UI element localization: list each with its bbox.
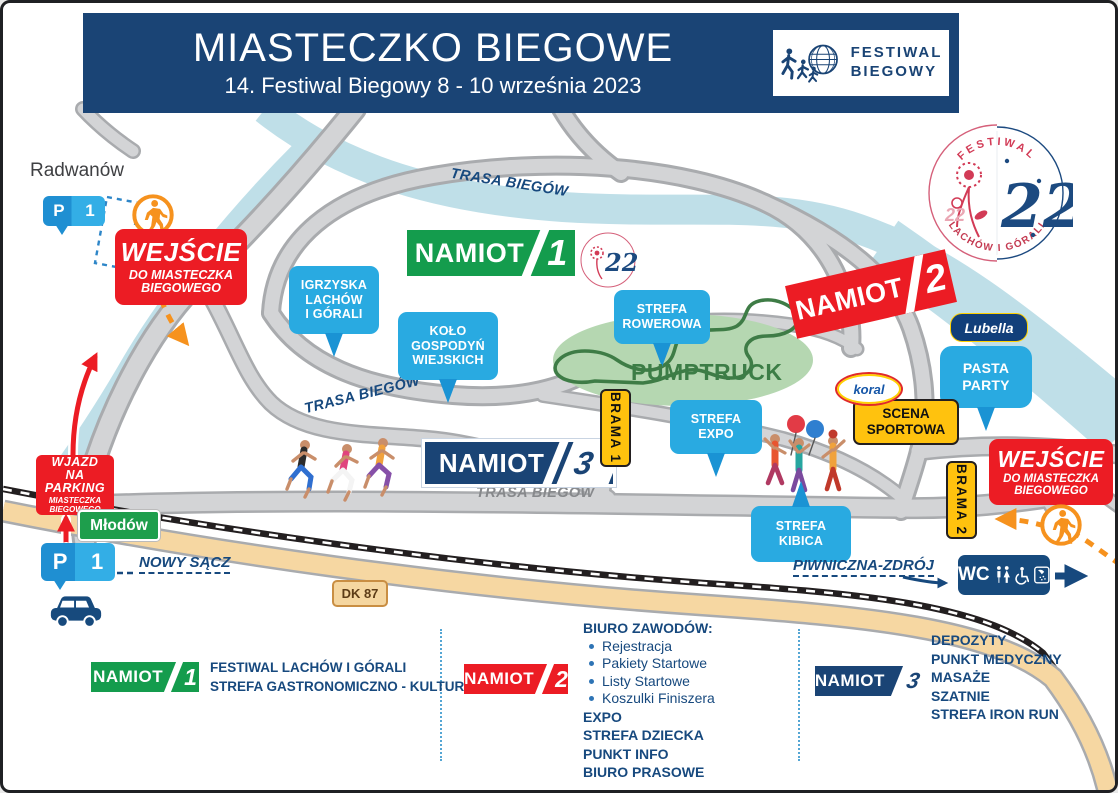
legend-n3-label: NAMIOT	[815, 671, 885, 691]
direction-nowy-sacz: NOWY SĄCZ	[139, 554, 230, 574]
pin-line: PASTA	[946, 360, 1026, 377]
entrance-line3: BIEGOWEGO	[1014, 485, 1087, 497]
legend-line: STREFA IRON RUN	[931, 705, 1062, 724]
namiot-1-number: 1	[547, 232, 567, 274]
legend-n2-number: 2	[555, 666, 568, 693]
runners-globe-icon	[780, 38, 844, 88]
bullet-dot	[589, 696, 594, 701]
legend-bullet: Rejestracja	[583, 638, 715, 656]
brand-wordmark: FESTIWAL BIEGOWY	[851, 44, 943, 82]
wc-sign: WC	[958, 555, 1050, 595]
route-label-bottom: TRASA BIEGÓW	[476, 485, 595, 501]
pin-igrzyska: IGRZYSKA LACHÓW I GÓRALI	[289, 266, 379, 334]
legend-line: PUNKT MEDYCZNY	[931, 650, 1062, 669]
brand-line1: FESTIWAL	[851, 44, 943, 63]
bullet-text: Pakiety Startowe	[602, 655, 707, 673]
bullet-dot	[589, 679, 594, 684]
lubella-logo: Lubella	[950, 313, 1028, 342]
namiot-2-slash	[905, 254, 923, 314]
entrance-line1: WEJŚCIE	[121, 239, 242, 266]
pin-kolo-gospodyn: KOŁO GOSPODYŃ WIEJSKICH	[398, 312, 498, 380]
legend-line: PUNKT INFO	[583, 745, 715, 764]
legend-line: STREFA DZIECKA	[583, 726, 715, 745]
bullet-text: Koszulki Finiszera	[602, 690, 715, 708]
pin-line: WIEJSKICH	[404, 353, 492, 368]
legend-line: EXPO	[583, 708, 715, 727]
legend-n2-label: NAMIOT	[464, 669, 534, 689]
legend-line: FESTIWAL LACHÓW I GÓRALI	[210, 659, 502, 678]
man-woman-icon	[995, 563, 1011, 587]
legend-divider-2	[798, 629, 800, 761]
wjazd-parking-sign: WJAZD NA PARKING MIASTECZKA BIEGOWEGO	[36, 455, 114, 515]
pin-strefa-rowerowa: STREFA ROWEROWA	[614, 290, 710, 344]
festiwal-biegowy-logo: FESTIWAL BIEGOWY	[773, 30, 949, 96]
legend-bullet: Listy Startowe	[583, 673, 715, 691]
car-icon	[47, 587, 105, 629]
legend-line: SZATNIE	[931, 687, 1062, 706]
namiot-3-label: NAMIOT	[439, 448, 545, 479]
bullet-dot	[589, 661, 594, 666]
brand-line2: BIEGOWY	[851, 63, 943, 82]
legend-line: STREFA GASTRONOMICZNO - KULTURALNA	[210, 678, 502, 697]
legend-namiot-3-text: DEPOZYTY PUNKT MEDYCZNY MASAŻE SZATNIE S…	[931, 631, 1062, 724]
wjazd-line2: NA PARKING	[36, 469, 114, 495]
svg-text:22: 22	[604, 248, 637, 277]
namiot-1-label: NAMIOT	[415, 238, 524, 269]
legend-n1-number: 1	[184, 664, 197, 691]
festival-mini-logo: 22	[579, 231, 637, 289]
gate-brama-1: BRAMA 1	[600, 389, 631, 467]
legend-namiot-2-text: BIURO ZAWODÓW: Rejestracja Pakiety Start…	[583, 619, 715, 782]
legend-n1-slash	[164, 662, 183, 692]
legend-bullet: Pakiety Startowe	[583, 655, 715, 673]
parking-p: P	[53, 549, 68, 575]
pumptruck-label: PUMPTRUCK	[631, 359, 782, 386]
parking-p1-sign-bottom: P 1	[41, 543, 115, 581]
road-label-dk87: DK 87	[332, 580, 388, 607]
koral-logo: koral	[835, 372, 903, 406]
pin-line: LACHÓW	[295, 293, 373, 308]
pin-line: PARTY	[946, 377, 1026, 394]
namiot-2-number: 2	[920, 256, 950, 303]
wheelchair-icon	[1015, 564, 1029, 586]
shower-icon	[1034, 564, 1050, 586]
pin-line: STREFA	[757, 519, 845, 534]
legend-line: DEPOZYTY	[931, 631, 1062, 650]
namiot-3-digit: 3	[571, 445, 597, 482]
stage-line1: SCENA	[882, 406, 929, 422]
map-poster: MIASTECZKO BIEGOWE 14. Festiwal Biegowy …	[0, 0, 1118, 793]
direction-piwniczna-zdroj: PIWNICZNA-ZDRÓJ	[793, 557, 934, 577]
entrance-line2: DO MIASTECZKA	[129, 269, 233, 282]
svg-text:22: 22	[944, 205, 965, 225]
legend-namiot-3-sign: NAMIOT 3	[815, 666, 925, 696]
legend-title: BIURO ZAWODÓW:	[583, 619, 715, 638]
legend-n2-slash	[535, 664, 554, 694]
header-titles: MIASTECZKO BIEGOWE 14. Festiwal Biegowy …	[93, 13, 773, 113]
gate-brama-2: BRAMA 2	[946, 461, 977, 539]
entrance-line2: DO MIASTECZKA	[1003, 473, 1099, 485]
namiot-1-slash	[522, 230, 550, 276]
legend-namiot-1-sign: NAMIOT 1	[91, 662, 199, 692]
parking-number: 1	[85, 201, 94, 221]
header-banner: MIASTECZKO BIEGOWE 14. Festiwal Biegowy …	[83, 13, 959, 113]
pin-line: ROWEROWA	[620, 317, 704, 332]
entrance-sign-right: WEJŚCIE DO MIASTECZKA BIEGOWEGO	[989, 439, 1113, 505]
bullet-text: Rejestracja	[602, 638, 672, 656]
koral-wordmark: koral	[853, 382, 884, 397]
legend-n1-label: NAMIOT	[93, 667, 163, 687]
parking-number: 1	[91, 549, 103, 575]
legend-line: BIURO PRASOWE	[583, 763, 715, 782]
pin-line: KIBICA	[757, 534, 845, 549]
lubella-wordmark: Lubella	[964, 320, 1013, 336]
pin-line: EXPO	[676, 427, 756, 442]
legend-bullet: Koszulki Finiszera	[583, 690, 715, 708]
legend-line: MASAŻE	[931, 668, 1062, 687]
page-subtitle: 14. Festiwal Biegowy 8 - 10 września 202…	[225, 73, 642, 99]
logo-navy-22: 22	[1000, 159, 1073, 242]
pin-line: STREFA	[620, 302, 704, 317]
pin-line: GOSPODYŃ	[404, 339, 492, 354]
legend-namiot-2-sign: NAMIOT 2	[464, 664, 568, 694]
namiot-1-sign: NAMIOT 1	[407, 230, 575, 276]
pin-line: STREFA	[676, 412, 756, 427]
place-sign-mlodow: Młodów	[78, 510, 160, 541]
legend-n3-digit: 3	[904, 668, 922, 694]
entrance-line3: BIEGOWEGO	[141, 282, 221, 295]
pedestrian-icon-right	[1039, 503, 1083, 547]
pin-line: KOŁO	[404, 324, 492, 339]
stage-line2: SPORTOWA	[867, 422, 946, 438]
wc-label: WC	[958, 564, 990, 586]
bullet-dot	[589, 644, 594, 649]
pin-line: IGRZYSKA	[295, 278, 373, 293]
pin-strefa-expo: STREFA EXPO	[670, 400, 762, 454]
entrance-line1: WEJŚCIE	[997, 447, 1104, 471]
legend-n3-number: 3	[891, 666, 925, 696]
entrance-sign-left: WEJŚCIE DO MIASTECZKA BIEGOWEGO	[115, 229, 247, 305]
svg-text:22: 22	[1000, 172, 1073, 242]
bullet-text: Listy Startowe	[602, 673, 690, 691]
festival-lachow-gorali-logo: FESTIWAL LACHÓW I GÓRALI 22 22	[921, 117, 1073, 269]
place-label-radwanow: Radwanów	[30, 160, 124, 182]
legend-namiot-1-text: FESTIWAL LACHÓW I GÓRALI STREFA GASTRONO…	[210, 659, 502, 696]
pin-line: I GÓRALI	[295, 307, 373, 322]
page-title: MIASTECZKO BIEGOWE	[193, 27, 673, 69]
parking-p: P	[53, 201, 64, 221]
namiot-3-sign: NAMIOT 3	[422, 439, 616, 487]
pin-strefa-kibica: STREFA KIBICA	[751, 506, 851, 562]
parking-p1-sign-top: P 1	[43, 196, 105, 226]
